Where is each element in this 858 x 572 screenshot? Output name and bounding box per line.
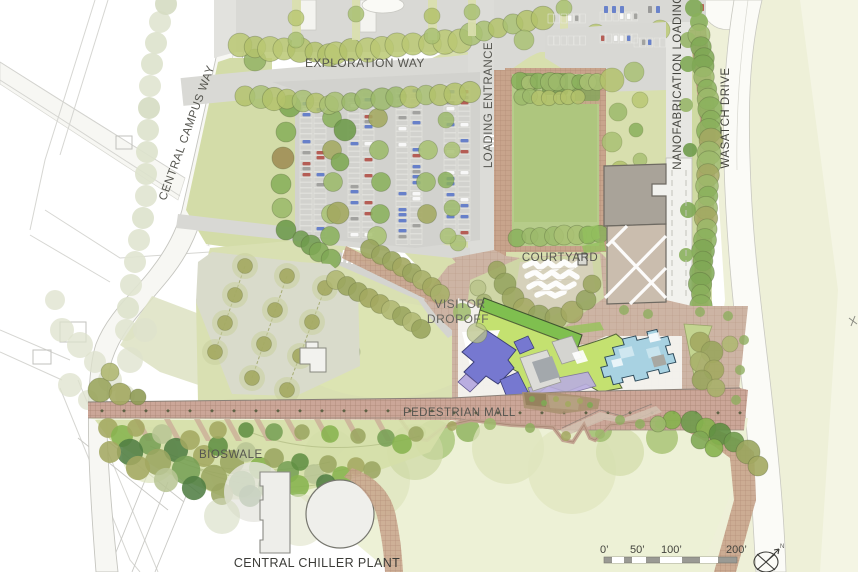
- svg-text:N: N: [780, 544, 784, 550]
- svg-text:COURTYARD: COURTYARD: [522, 252, 598, 264]
- svg-text:CENTRAL CHILLER PLANT: CENTRAL CHILLER PLANT: [234, 556, 400, 570]
- svg-text:EXPLORATION WAY: EXPLORATION WAY: [305, 56, 425, 70]
- svg-text:50’: 50’: [630, 544, 645, 556]
- svg-text:BIOSWALE: BIOSWALE: [199, 449, 263, 461]
- svg-text:NANOFABRICATION LOADING: NANOFABRICATION LOADING: [672, 0, 684, 170]
- svg-text:DROPOFF: DROPOFF: [427, 312, 489, 326]
- svg-text:100’: 100’: [661, 544, 682, 556]
- svg-text:0’: 0’: [600, 544, 609, 556]
- svg-text:PEDESTRIAN MALL: PEDESTRIAN MALL: [403, 407, 516, 419]
- svg-text:VISITOR: VISITOR: [434, 297, 485, 311]
- svg-text:200’: 200’: [726, 544, 747, 556]
- svg-text:LOADING ENTRANCE: LOADING ENTRANCE: [483, 42, 495, 168]
- svg-text:WASATCH DRIVE: WASATCH DRIVE: [720, 67, 732, 168]
